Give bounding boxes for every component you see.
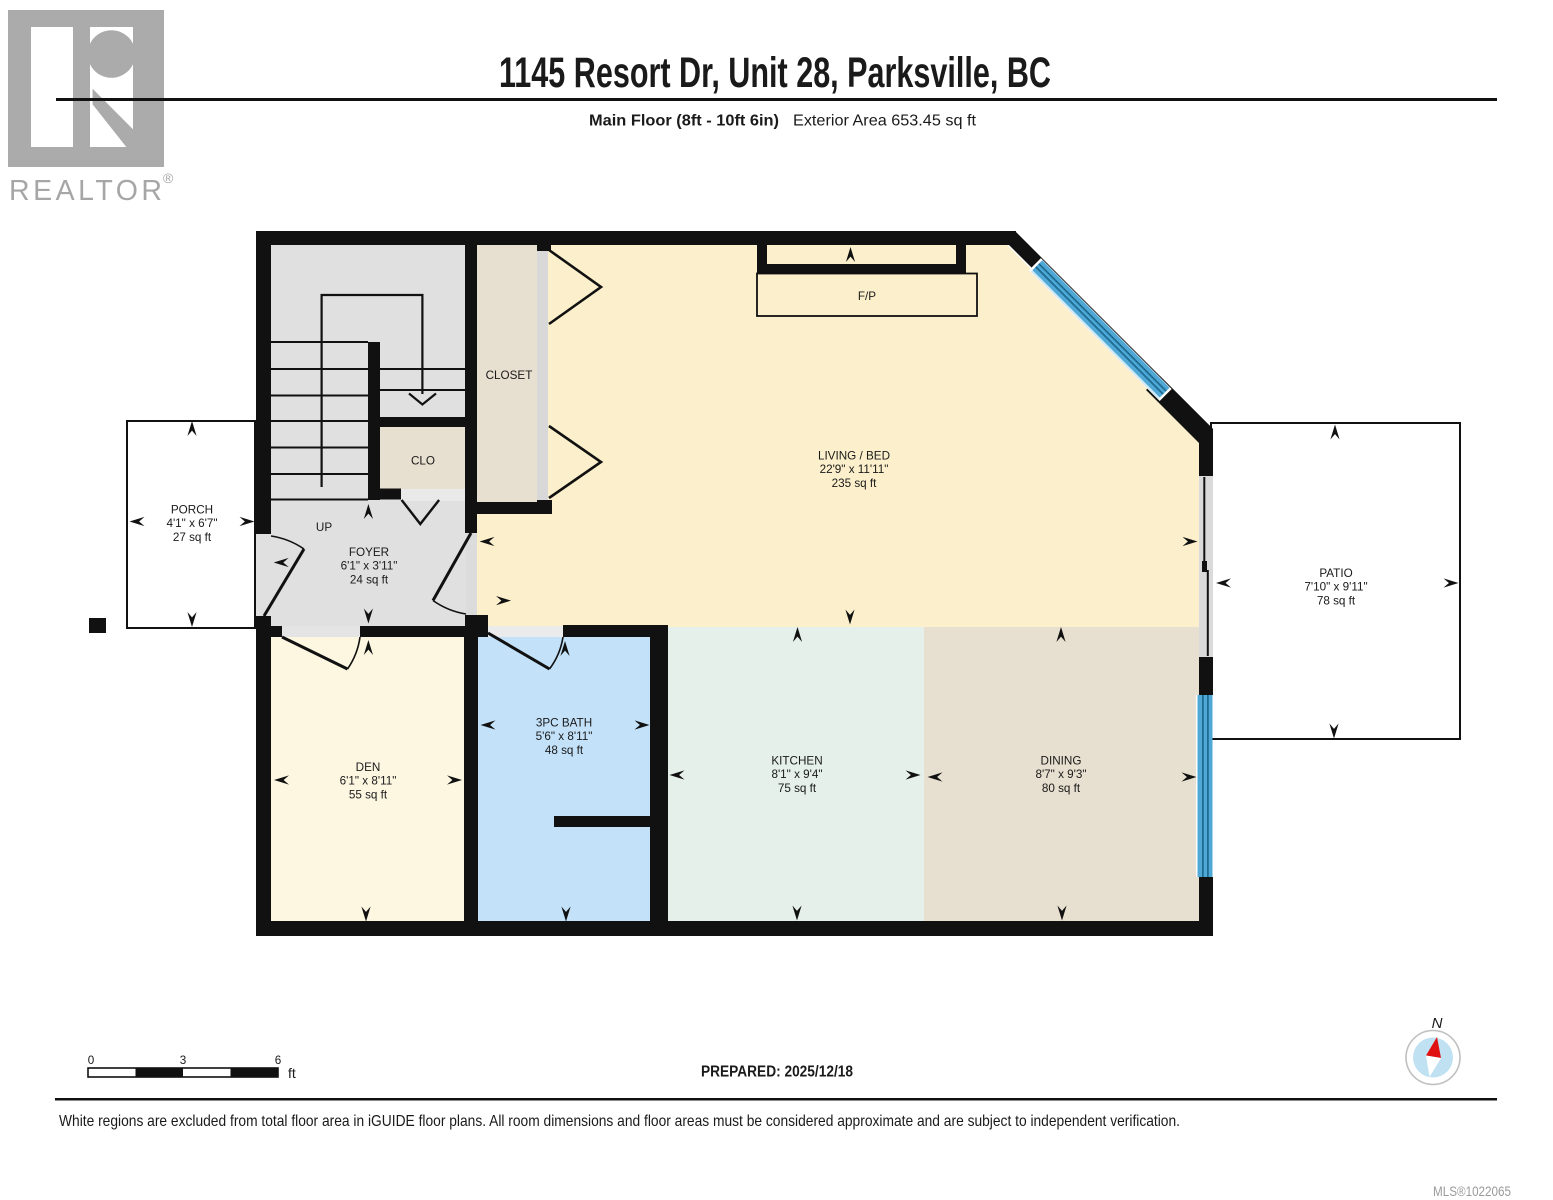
svg-text:®: ® <box>163 170 174 186</box>
svg-text:78 sq ft: 78 sq ft <box>1317 594 1356 607</box>
svg-text:Main Floor (8ft - 10ft 6in): Main Floor (8ft - 10ft 6in) <box>589 113 779 130</box>
svg-text:8'7" x 9'3": 8'7" x 9'3" <box>1035 768 1086 781</box>
svg-text:55 sq ft: 55 sq ft <box>349 788 388 801</box>
svg-text:Exterior Area 653.45 sq ft: Exterior Area 653.45 sq ft <box>793 113 977 130</box>
svg-text:PREPARED: 2025/12/18: PREPARED: 2025/12/18 <box>701 1064 853 1081</box>
svg-text:80 sq ft: 80 sq ft <box>1042 782 1081 795</box>
svg-text:7'10" x 9'11": 7'10" x 9'11" <box>1304 581 1367 594</box>
svg-text:75 sq ft: 75 sq ft <box>778 782 817 795</box>
svg-text:CLOSET: CLOSET <box>486 369 533 382</box>
svg-text:KITCHEN: KITCHEN <box>771 754 822 767</box>
svg-text:235 sq ft: 235 sq ft <box>832 477 878 490</box>
svg-text:0: 0 <box>88 1054 95 1067</box>
svg-text:PATIO: PATIO <box>1319 567 1352 580</box>
svg-text:8'1" x 9'4": 8'1" x 9'4" <box>771 768 822 781</box>
svg-text:5'6" x 8'11": 5'6" x 8'11" <box>536 730 593 743</box>
svg-text:MLS®1022065: MLS®1022065 <box>1433 1184 1511 1199</box>
svg-text:FOYER: FOYER <box>349 546 389 559</box>
svg-text:UP: UP <box>316 521 332 534</box>
svg-text:F/P: F/P <box>858 290 876 303</box>
svg-text:LIVING / BED: LIVING / BED <box>818 450 890 463</box>
svg-text:3: 3 <box>180 1054 187 1067</box>
svg-text:PORCH: PORCH <box>171 504 213 517</box>
svg-text:1145 Resort Dr, Unit 28, Parks: 1145 Resort Dr, Unit 28, Parksville, BC <box>499 49 1051 97</box>
svg-text:6: 6 <box>275 1054 282 1067</box>
svg-text:DEN: DEN <box>356 761 381 774</box>
svg-text:N: N <box>1432 1015 1443 1032</box>
svg-text:ft: ft <box>288 1065 296 1081</box>
svg-text:48 sq ft: 48 sq ft <box>545 744 584 757</box>
svg-text:6'1" x 3'11": 6'1" x 3'11" <box>341 560 398 573</box>
svg-text:6'1" x 8'11": 6'1" x 8'11" <box>340 775 397 788</box>
svg-text:27 sq ft: 27 sq ft <box>173 531 212 544</box>
svg-text:24 sq ft: 24 sq ft <box>350 573 389 586</box>
svg-text:4'1" x 6'7": 4'1" x 6'7" <box>166 517 217 530</box>
svg-text:DINING: DINING <box>1041 754 1082 767</box>
svg-text:3PC BATH: 3PC BATH <box>536 717 592 730</box>
svg-text:CLO: CLO <box>411 455 435 468</box>
svg-text:22'9" x 11'11": 22'9" x 11'11" <box>820 463 889 476</box>
svg-text:White regions are excluded fro: White regions are excluded from total fl… <box>59 1113 1180 1130</box>
